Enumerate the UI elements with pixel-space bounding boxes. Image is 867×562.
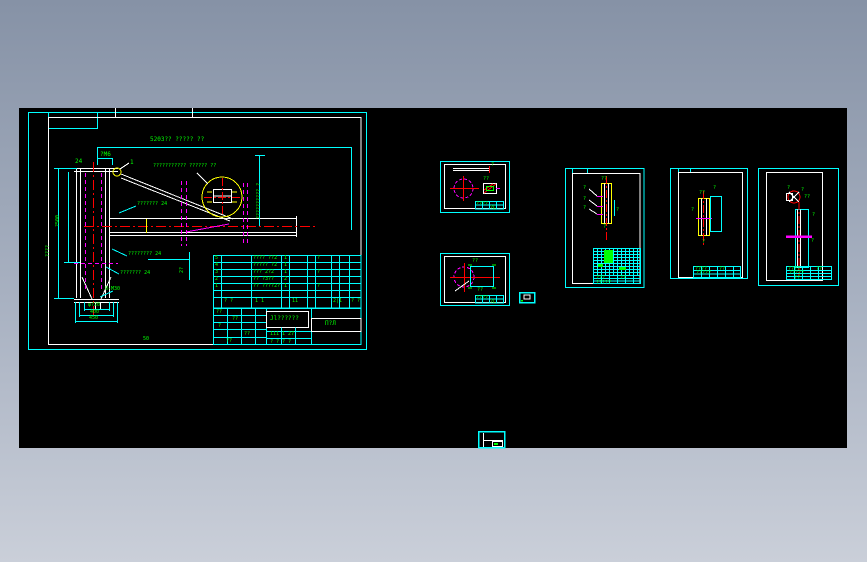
bom-row-name: ???? ??2 (253, 256, 277, 261)
title-cell: ?? (244, 332, 250, 337)
sheet-c-side: ? (616, 208, 619, 213)
bom-footer-cell: 2|1 (333, 299, 342, 304)
bom-row-no: 1 (215, 284, 218, 289)
sheet-d (671, 169, 748, 279)
title-cell: ?? (232, 317, 238, 322)
drawing-title: Jl?????? (270, 316, 299, 322)
sheet-b-note-top: ?? (472, 259, 478, 264)
title-sub-row: 111 1 27 (270, 332, 294, 337)
anchor-label: 8-M30 (105, 287, 120, 292)
dim-left-inner: ?500 (56, 215, 61, 227)
bom-footer-cell: ? ? (351, 299, 360, 304)
bom-row-no: 5 (215, 256, 218, 261)
sheet-b-note-bottom: ?? (477, 288, 483, 293)
sheet-e-mark-w2: ?? (804, 195, 810, 200)
sheet-e-mark-w3: ? (787, 186, 790, 191)
bom-row-qty: 2 (284, 277, 287, 282)
bom-row-no: 3 (215, 270, 218, 275)
base-dim-3: 450 (89, 316, 98, 321)
bom-row-name: ?? ????2? (253, 284, 280, 289)
bom-row-mat: ? (317, 256, 320, 261)
sheet-b-title: ???? (476, 296, 488, 301)
bom-row-mat: ? (317, 284, 320, 289)
bom-row-qty: 1 (284, 256, 287, 261)
sheet-c-top: ?? (601, 177, 607, 182)
base-dim-1: φ?20 (88, 303, 100, 308)
bom-row-qty: 1 (284, 270, 287, 275)
main-column-view (74, 162, 119, 318)
sheet-a-note: ?? (483, 177, 489, 182)
leader-label-lower: ??????? 24 (120, 271, 150, 276)
dim-gap: 2? (180, 267, 185, 273)
sheet-a-title: ???? (476, 202, 488, 207)
sheet-a-tick: ? (491, 163, 494, 168)
leader-label-mid: ??????? 24 (137, 202, 167, 207)
sheet-e-titlerow3: ????? (789, 271, 804, 276)
sheet-c-mark: ? (583, 206, 586, 211)
sheet-d-right: ? (713, 186, 716, 191)
detail-circle (113, 163, 242, 217)
bom-row-mat: ? (317, 270, 320, 275)
leader-label-low: ???????? 24 (128, 252, 161, 257)
sheet-a-title2: ?L (490, 206, 496, 211)
cad-linework (0, 0, 867, 562)
bom-row-no: 2 (215, 277, 218, 282)
title-bottom-row: ? ? ? ? (270, 340, 291, 345)
sheet-c-bottom: ? (603, 225, 606, 230)
sheet-b-title2: ?L (490, 300, 496, 305)
dim-label-m6: ?M6 (100, 152, 111, 158)
sheet-d-bottom: ? (702, 240, 705, 245)
bom-footer-cell: 1 1 (255, 299, 264, 304)
sheet-d-titlerow2: ?? (719, 267, 725, 272)
sheet-d-titlerow3: ????? (696, 271, 711, 276)
bom-footer-cell: 11 (292, 299, 298, 304)
bom-row-qty: 1 (284, 284, 287, 289)
title-cell: ? (218, 324, 221, 329)
thumbnail-icon-bottom[interactable] (479, 432, 505, 448)
sheet-e-mark-m1: ? (812, 213, 815, 218)
bom-row-name: ?? ?3?? (253, 277, 274, 282)
bom-row-no: 4 (215, 263, 218, 268)
sheet-e-mark-m3: ?? (794, 276, 800, 281)
sheet-c-mark: ? (583, 197, 586, 202)
dim-label-top: 5203?? ????? ?? (150, 137, 204, 143)
detail-number-label: 1 (130, 160, 134, 166)
bom-footer-cell: ? ? (224, 299, 233, 304)
sheet-d-top: ?? (699, 191, 705, 196)
dim-left-outer: ???? (46, 245, 51, 257)
sheet-e-titlerow2: ?? (816, 267, 822, 272)
sheet-a (441, 162, 510, 213)
title-cell: ?? (226, 339, 232, 344)
bom-row-name: ????? ?2 (253, 263, 277, 268)
bom-row-name: ??? 2?2 (253, 270, 274, 275)
sheet-e-mark-w1: ? (801, 188, 804, 193)
sheet-c-mark: ? (583, 186, 586, 191)
bom-row-qty: 1 (284, 263, 287, 268)
main-beam-view (84, 174, 318, 246)
sheet-e-mark-m2: ? (811, 239, 814, 244)
sheet-c-titlerow3: ????? (596, 281, 611, 286)
sheet-c-titlerow2: ?? (620, 276, 626, 281)
leader-label-detail: ??????????? ?????? ?? (153, 164, 216, 169)
dim-label-24: 24 (75, 159, 82, 165)
title-cell: ?? (216, 310, 222, 315)
sheet-number: 50 (143, 337, 149, 342)
sheet-d-left: ? (691, 208, 694, 213)
thumbnail-icon-mid[interactable] (520, 293, 535, 303)
dim-right-vertical: ?????????? ? (257, 183, 262, 219)
drawing-code: П?Л (325, 321, 336, 327)
